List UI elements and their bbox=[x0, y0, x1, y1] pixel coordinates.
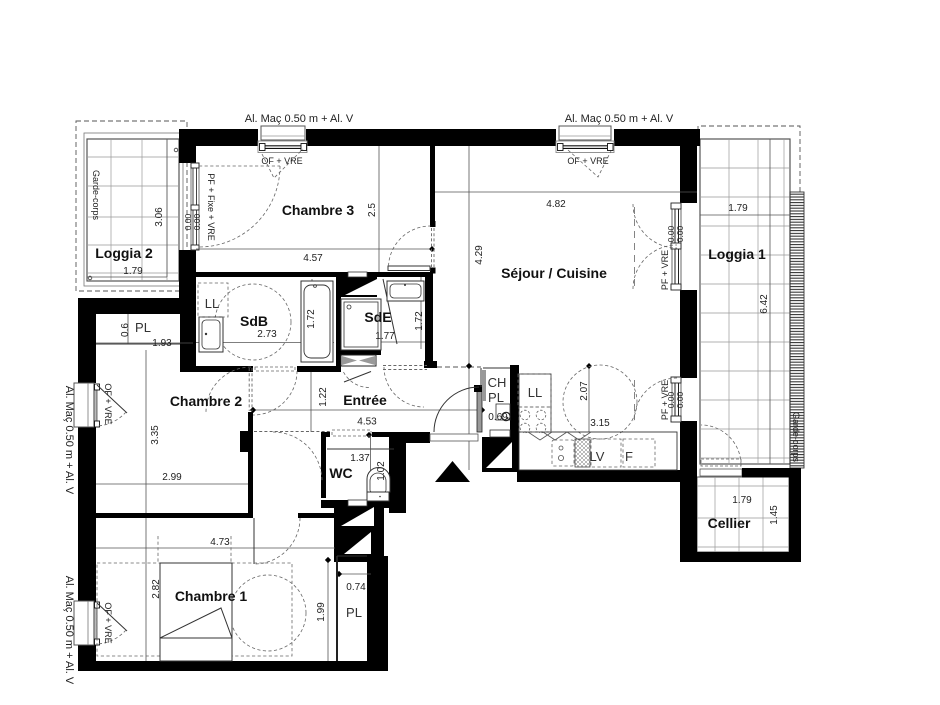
svg-text:1.79: 1.79 bbox=[732, 495, 752, 506]
svg-text:2.99: 2.99 bbox=[162, 472, 182, 483]
svg-text:1.79: 1.79 bbox=[728, 203, 748, 214]
svg-text:LV: LV bbox=[590, 449, 605, 464]
svg-text:LL: LL bbox=[205, 296, 219, 311]
svg-text:F: F bbox=[625, 449, 633, 464]
svg-text:Cellier: Cellier bbox=[708, 515, 751, 531]
svg-text:6.42: 6.42 bbox=[759, 294, 770, 314]
svg-text:OF + VRE: OF + VRE bbox=[103, 383, 113, 424]
svg-text:4.73: 4.73 bbox=[210, 537, 230, 548]
svg-text:OF + VRE: OF + VRE bbox=[567, 156, 608, 166]
svg-text:3.06: 3.06 bbox=[154, 207, 165, 227]
svg-text:2.5: 2.5 bbox=[367, 203, 378, 217]
svg-text:Chambre 1: Chambre 1 bbox=[175, 588, 248, 604]
svg-text:CH: CH bbox=[488, 375, 507, 390]
svg-text:0.6: 0.6 bbox=[120, 323, 131, 337]
svg-text:1.79: 1.79 bbox=[123, 266, 143, 277]
svg-text:2.73: 2.73 bbox=[257, 329, 277, 340]
svg-text:PF + VRE: PF + VRE bbox=[660, 250, 670, 290]
svg-text:PL: PL bbox=[488, 390, 504, 405]
svg-text:1.37: 1.37 bbox=[350, 453, 370, 464]
svg-text:LL: LL bbox=[528, 385, 542, 400]
svg-text:Chambre 2: Chambre 2 bbox=[170, 393, 243, 409]
svg-text:1.93: 1.93 bbox=[152, 338, 172, 349]
svg-text:PL: PL bbox=[135, 320, 151, 335]
svg-text:3.35: 3.35 bbox=[150, 425, 161, 445]
svg-text:SdE: SdE bbox=[364, 309, 391, 325]
svg-text:2.82: 2.82 bbox=[151, 579, 162, 599]
svg-text:4.53: 4.53 bbox=[357, 417, 377, 428]
svg-text:Garde-corps: Garde-corps bbox=[91, 170, 101, 221]
svg-text:1.45: 1.45 bbox=[769, 505, 780, 525]
svg-text:0.00: 0.00 bbox=[675, 225, 685, 242]
svg-text:3.15: 3.15 bbox=[590, 418, 610, 429]
svg-text:Loggia 1: Loggia 1 bbox=[708, 246, 766, 262]
svg-text:WC: WC bbox=[329, 465, 352, 481]
svg-text:0.69: 0.69 bbox=[488, 412, 508, 423]
svg-text:1.72: 1.72 bbox=[414, 311, 425, 331]
svg-text:OF + VRE: OF + VRE bbox=[261, 156, 302, 166]
svg-text:0.00: 0.00 bbox=[675, 391, 685, 408]
svg-text:Al. Maç 0.50 m + Al. V: Al. Maç 0.50 m + Al. V bbox=[565, 113, 674, 125]
svg-text:0.00: 0.00 bbox=[192, 213, 202, 230]
svg-text:2.07: 2.07 bbox=[579, 381, 590, 401]
svg-text:PF + Fixe + VRE: PF + Fixe + VRE bbox=[206, 173, 216, 241]
svg-text:OF + VRE: OF + VRE bbox=[103, 602, 113, 643]
svg-text:Séjour / Cuisine: Séjour / Cuisine bbox=[501, 265, 607, 281]
svg-text:1.99: 1.99 bbox=[316, 602, 327, 622]
svg-text:1.72: 1.72 bbox=[306, 309, 317, 329]
svg-text:4.29: 4.29 bbox=[474, 245, 485, 265]
svg-text:Al. Maç 0.50 m + Al. V: Al. Maç 0.50 m + Al. V bbox=[63, 576, 75, 685]
svg-text:0.74: 0.74 bbox=[346, 582, 366, 593]
svg-text:1.02: 1.02 bbox=[376, 461, 387, 481]
svg-text:SdB: SdB bbox=[240, 313, 268, 329]
svg-text:Al. Maç 0.50 m + Al. V: Al. Maç 0.50 m + Al. V bbox=[245, 113, 354, 125]
svg-text:Garde-corps: Garde-corps bbox=[791, 412, 801, 463]
svg-text:Loggia 2: Loggia 2 bbox=[95, 245, 153, 261]
svg-text:1.22: 1.22 bbox=[318, 387, 329, 407]
svg-text:PF + VRE: PF + VRE bbox=[660, 380, 670, 420]
svg-text:Entrée: Entrée bbox=[343, 392, 387, 408]
svg-text:Chambre 3: Chambre 3 bbox=[282, 202, 355, 218]
svg-text:Al. Maç 0.50 m + Al. V: Al. Maç 0.50 m + Al. V bbox=[63, 386, 75, 495]
svg-text:PL: PL bbox=[346, 605, 362, 620]
svg-text:4.82: 4.82 bbox=[546, 199, 566, 210]
svg-text:1.77: 1.77 bbox=[375, 331, 395, 342]
svg-text:4.57: 4.57 bbox=[303, 253, 323, 264]
